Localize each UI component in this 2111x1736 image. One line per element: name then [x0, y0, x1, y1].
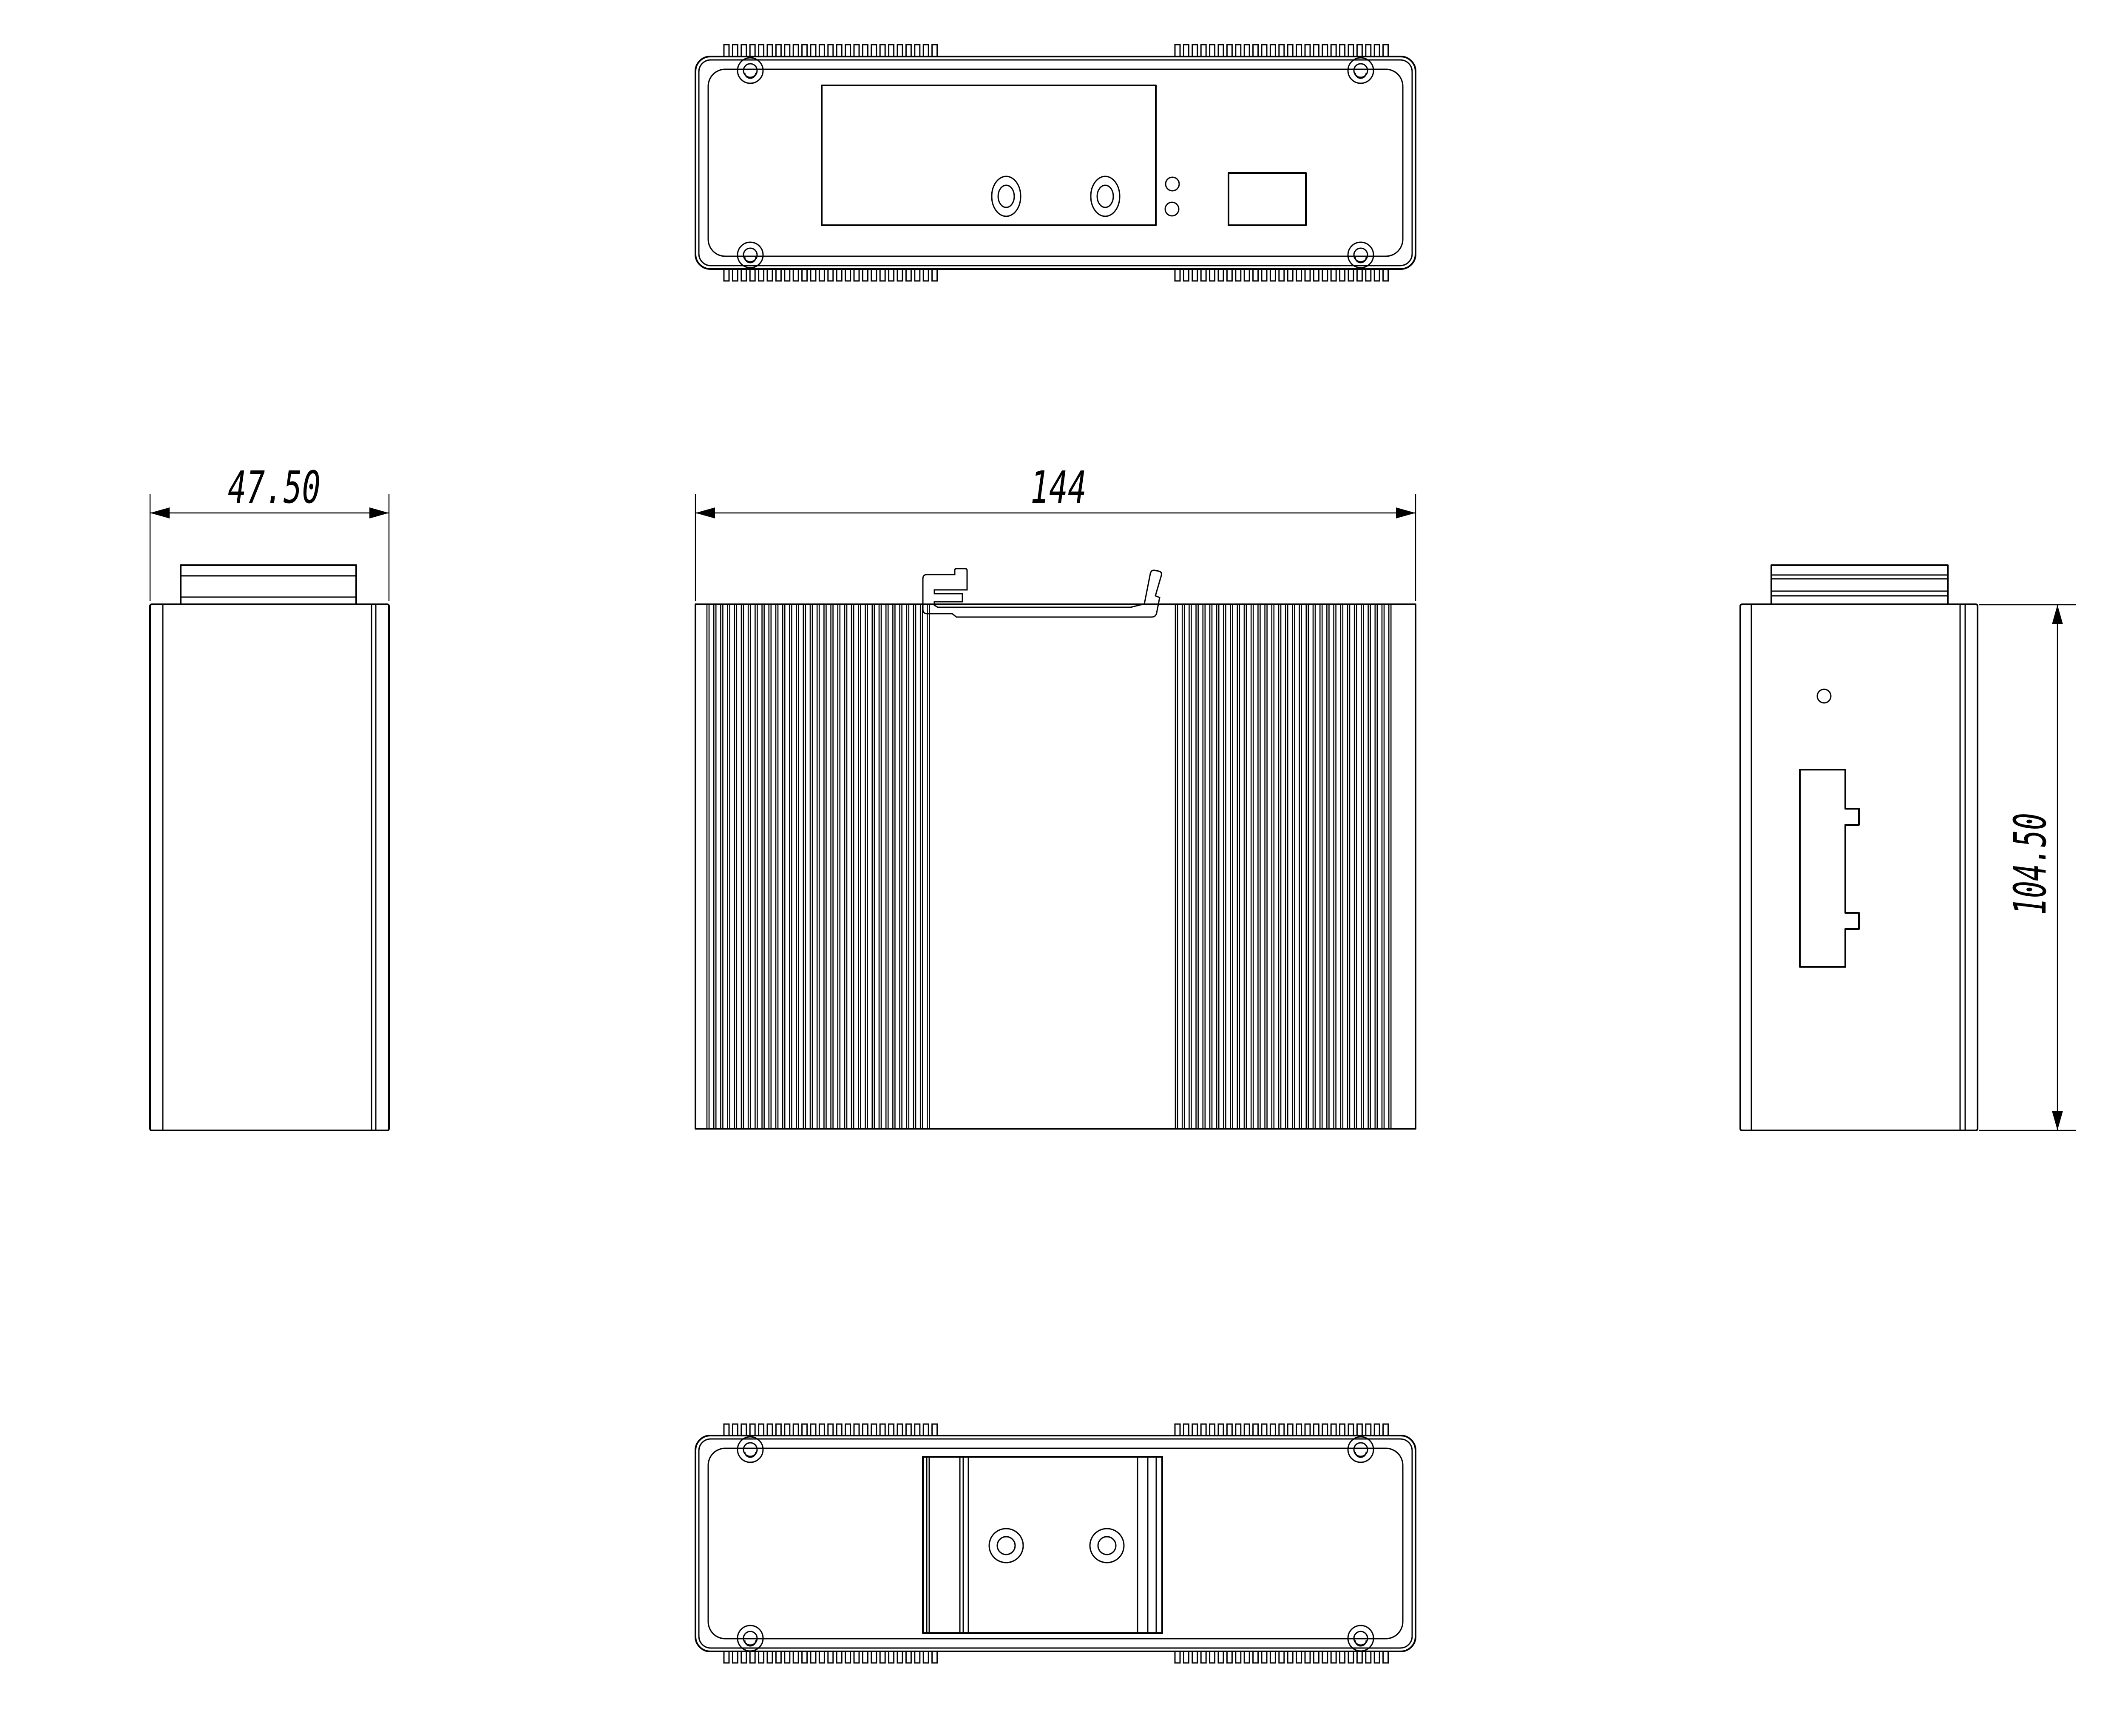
panel-cutout	[822, 85, 1156, 225]
fin-edge-lines	[163, 604, 376, 1130]
din-rail-cap	[181, 565, 356, 604]
right-view-body	[1740, 604, 1978, 1130]
bottom-view-body	[695, 1436, 1416, 1651]
right-side-view	[1740, 565, 1978, 1130]
corner-screw-hole	[1348, 1437, 1373, 1462]
dimension-annotations: 47.50 144 104.50	[150, 462, 2076, 1130]
heatsink-teeth	[724, 1651, 940, 1663]
plate-screw-hole-inner	[997, 1537, 1015, 1555]
din-rail-cap-lines	[181, 576, 356, 597]
depth-dimension-label: 47.50	[228, 462, 321, 513]
top-view	[695, 45, 1416, 281]
din-mount-plate-lines	[927, 1457, 1156, 1633]
height-arrow-bottom	[2052, 1111, 2063, 1130]
width-arrow-right	[1396, 507, 1416, 518]
left-view-body	[150, 604, 389, 1130]
led-hole	[1166, 177, 1179, 191]
heatsink-fins	[1175, 605, 1391, 1128]
front-view	[695, 569, 1416, 1129]
din-mount-bracket	[1800, 770, 1859, 967]
heatsink-fins	[707, 605, 929, 1128]
plate-screw-hole	[1090, 1529, 1124, 1563]
din-rail-cap	[1771, 565, 1948, 604]
corner-screw-hole	[738, 58, 763, 83]
led-hole	[1165, 202, 1179, 216]
panel-screw-hole-inner	[998, 185, 1014, 207]
height-arrow-top	[2052, 605, 2063, 624]
heatsink-teeth	[1175, 1424, 1390, 1436]
left-side-view	[150, 565, 389, 1130]
din-mount-plate	[923, 1457, 1162, 1633]
orthographic-drawing-canvas: 47.50 144 104.50	[0, 0, 2111, 1736]
plate-screw-hole	[989, 1529, 1023, 1563]
width-dimension-label: 144	[1030, 462, 1087, 513]
depth-arrow-right	[369, 507, 389, 518]
panel-screw-hole	[992, 176, 1021, 216]
fin-edge-lines	[1751, 604, 1965, 1130]
depth-arrow-left	[150, 507, 170, 518]
corner-screw-hole	[738, 242, 763, 268]
pin-hole	[1817, 689, 1831, 703]
din-clip-latch	[1131, 570, 1161, 617]
panel-screw-hole	[1091, 176, 1120, 216]
heatsink-teeth	[724, 269, 940, 281]
heatsink-teeth	[724, 45, 940, 57]
connector-cutout	[1229, 173, 1306, 225]
plate-screw-hole-inner	[1098, 1537, 1116, 1555]
corner-screw-hole	[738, 1437, 763, 1462]
top-view-body-inner	[699, 60, 1412, 266]
top-view-inner-face	[708, 69, 1403, 256]
width-arrow-left	[695, 507, 715, 518]
drawing-page: 47.50 144 104.50	[0, 0, 2111, 1736]
height-dimension-label: 104.50	[2004, 813, 2056, 915]
top-view-body	[695, 57, 1416, 269]
corner-screw-hole	[1348, 58, 1373, 83]
panel-screw-hole-inner	[1097, 185, 1113, 207]
heatsink-teeth	[1175, 45, 1390, 57]
din-clip-hook	[923, 569, 1152, 617]
corner-screw-hole	[1348, 242, 1373, 268]
din-rail-cap-lines	[1771, 575, 1948, 596]
heatsink-teeth	[1175, 1651, 1390, 1663]
bottom-view-inner-face	[708, 1448, 1403, 1639]
din-clip-hook-notch	[934, 571, 1131, 607]
heatsink-teeth	[724, 1424, 940, 1436]
bottom-view	[695, 1424, 1416, 1663]
bottom-view-body-inner	[699, 1439, 1412, 1648]
heatsink-teeth	[1175, 269, 1390, 281]
